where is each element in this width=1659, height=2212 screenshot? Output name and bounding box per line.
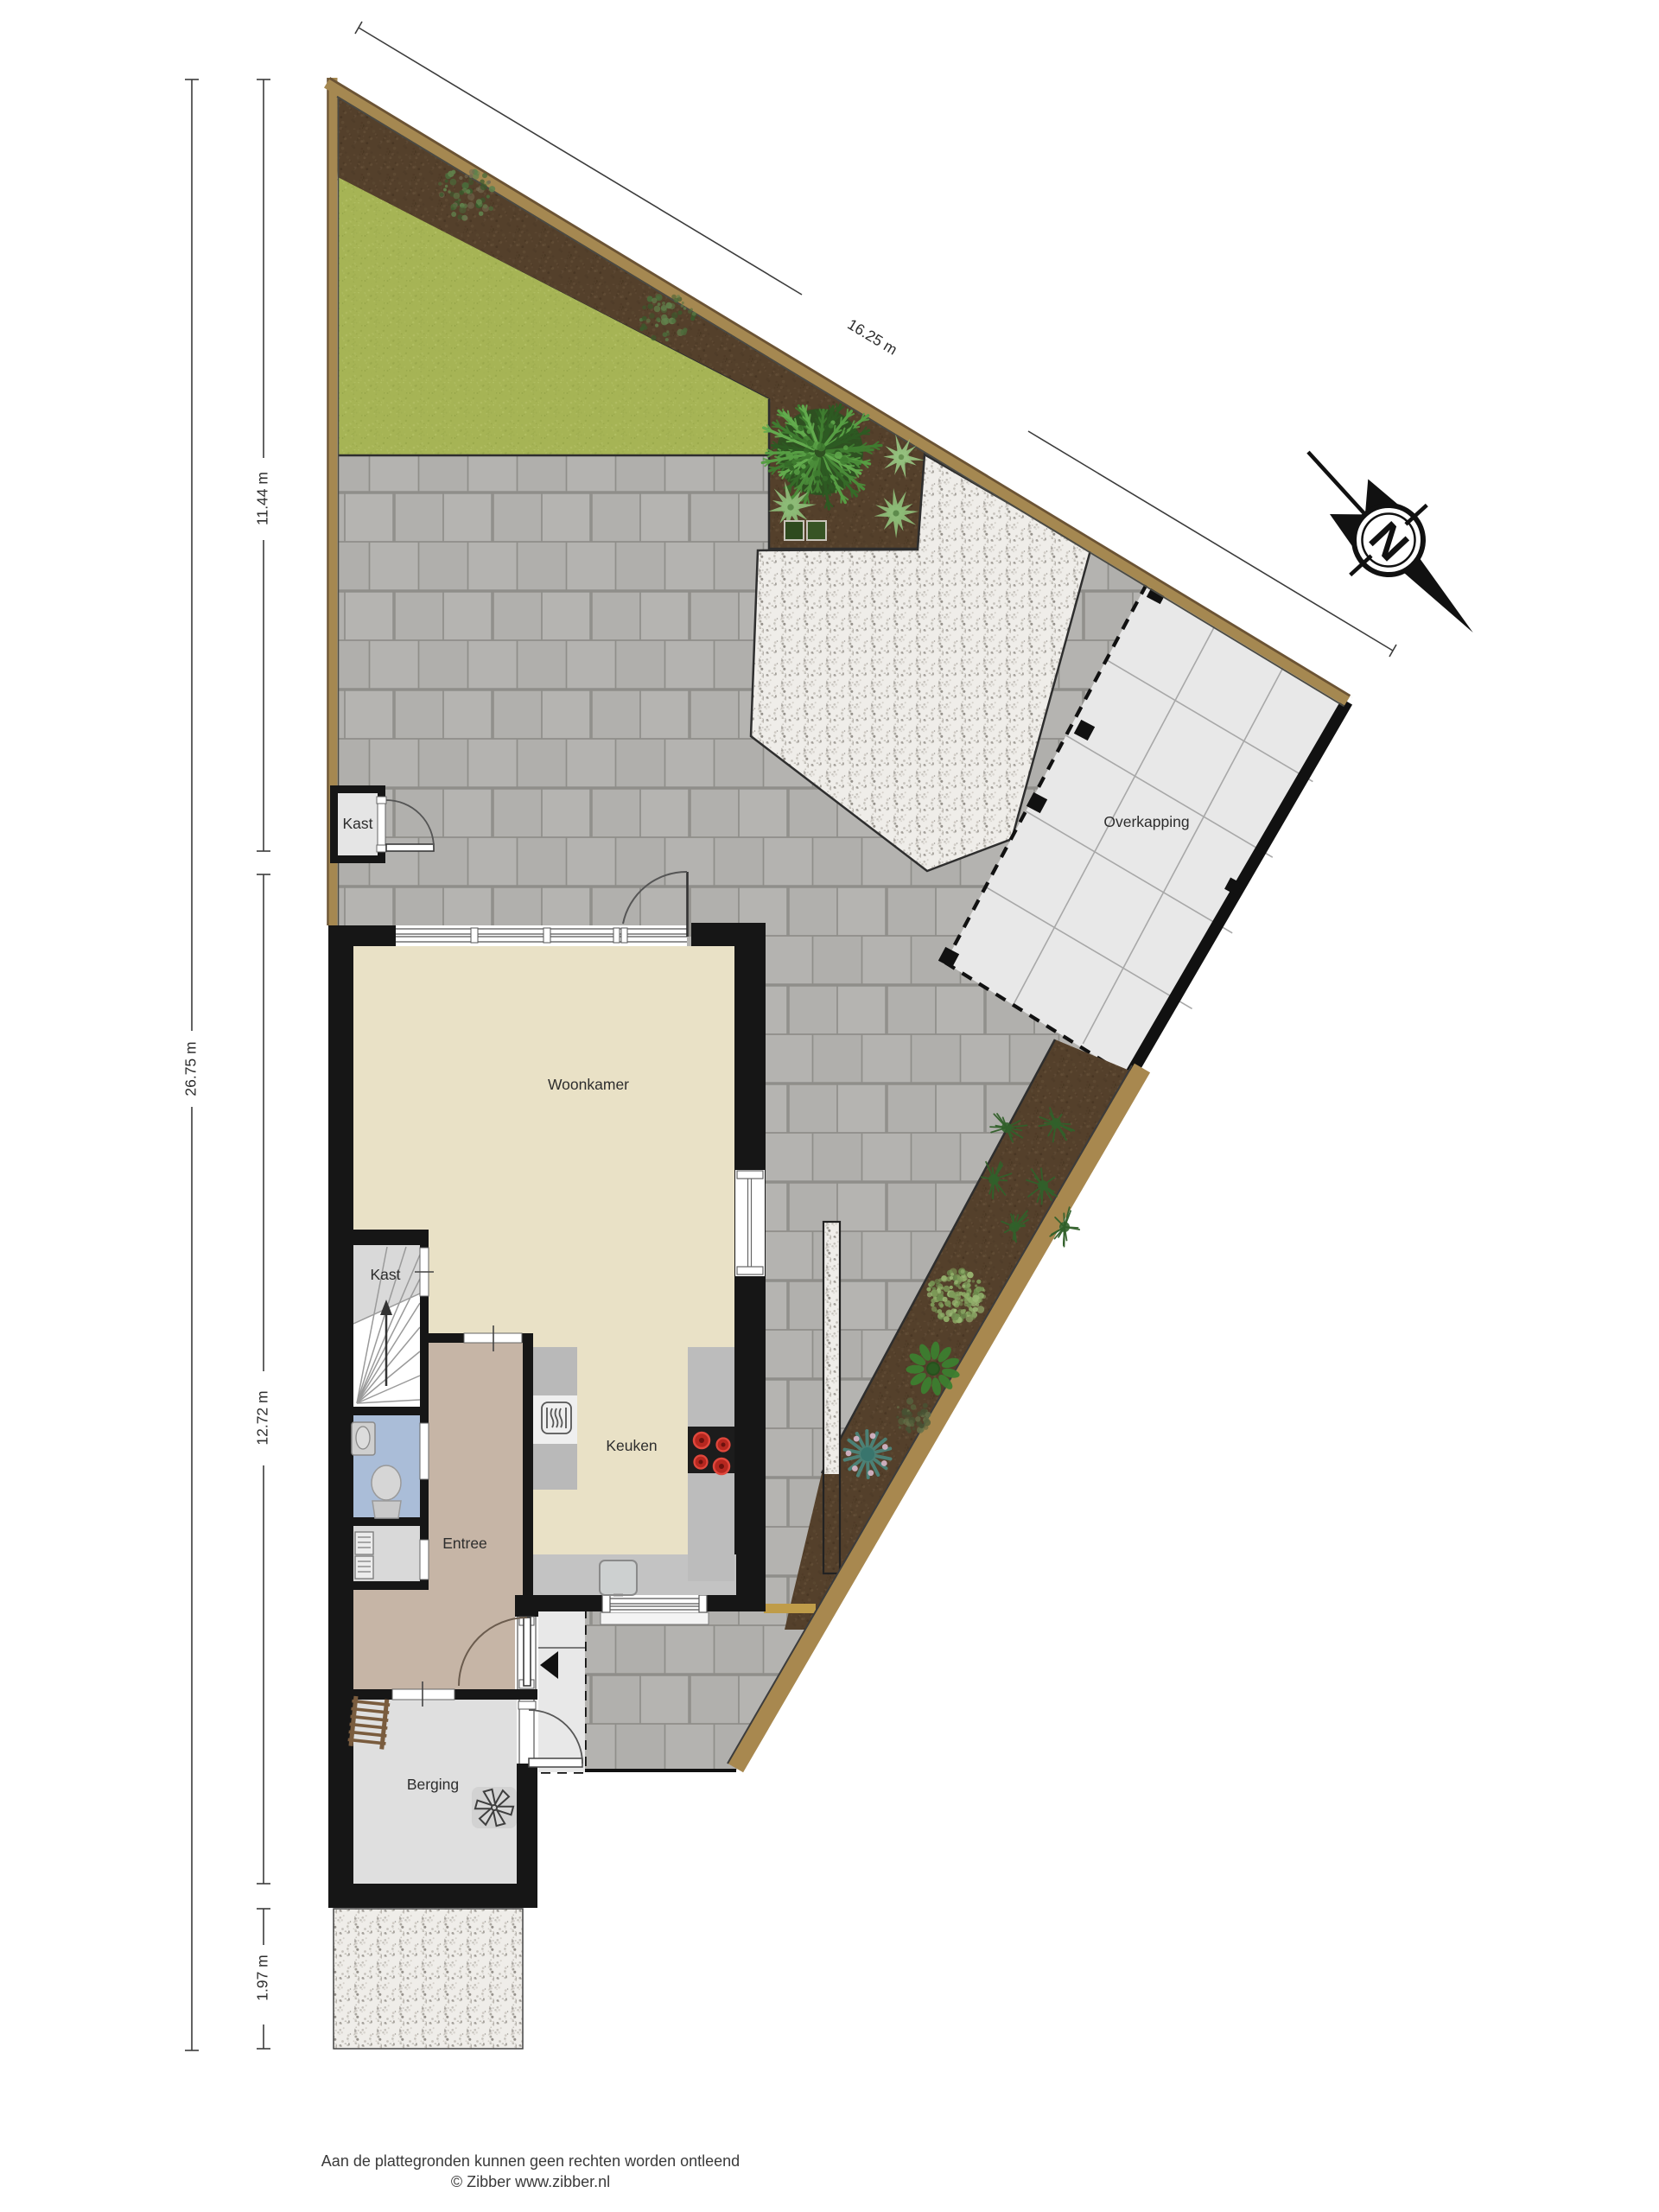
svg-text:Berging: Berging <box>407 1776 459 1793</box>
svg-text:Overkapping: Overkapping <box>1103 813 1189 830</box>
svg-text:11.44 m: 11.44 m <box>254 472 271 525</box>
svg-text:Keuken: Keuken <box>606 1437 657 1454</box>
svg-text:© Zibber www.zibber.nl: © Zibber www.zibber.nl <box>451 2173 610 2190</box>
svg-text:Entree: Entree <box>442 1535 487 1552</box>
svg-text:Woonkamer: Woonkamer <box>548 1076 629 1093</box>
svg-text:Aan de plattegronden kunnen ge: Aan de plattegronden kunnen geen rechten… <box>321 2152 740 2170</box>
svg-text:1.97 m: 1.97 m <box>254 1955 271 2001</box>
svg-text:Kast: Kast <box>370 1266 400 1283</box>
svg-text:26.75 m: 26.75 m <box>182 1041 200 1096</box>
svg-text:Kast: Kast <box>342 815 372 832</box>
svg-text:12.72 m: 12.72 m <box>254 1390 271 1445</box>
